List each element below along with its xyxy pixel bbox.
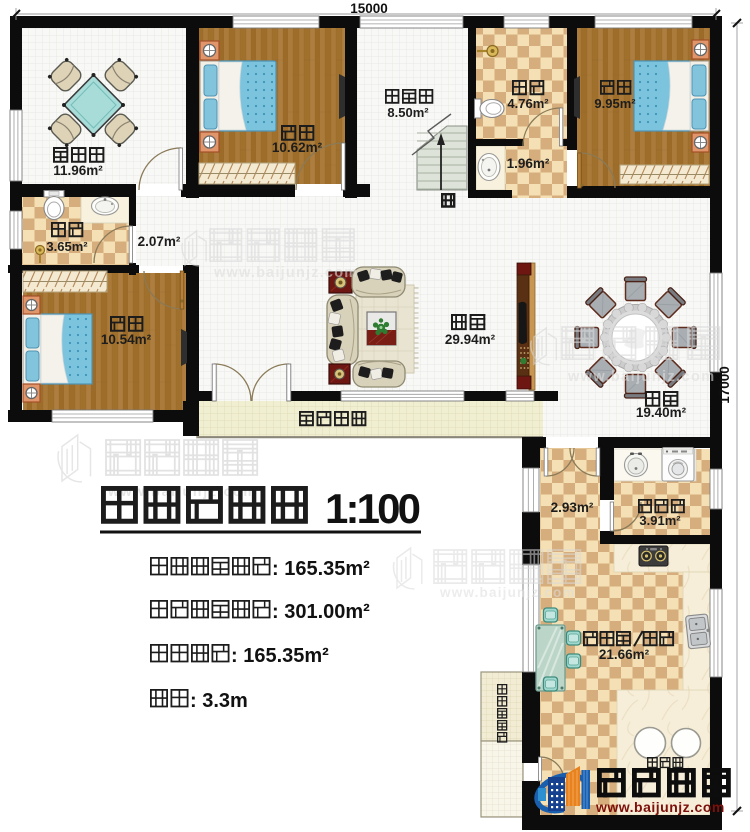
svg-text:15000: 15000 [350, 1, 388, 16]
svg-text:: 165.35m²: : 165.35m² [272, 558, 370, 580]
svg-text:19.40m²: 19.40m² [636, 405, 687, 420]
svg-text:2.07m²: 2.07m² [138, 234, 181, 249]
svg-text:www.baijunjz.com: www.baijunjz.com [595, 799, 725, 815]
svg-text:2.93m²: 2.93m² [551, 500, 594, 515]
svg-text:4.76m²: 4.76m² [507, 96, 549, 111]
svg-text:10.62m²: 10.62m² [272, 140, 323, 155]
svg-text:3.65m²: 3.65m² [46, 239, 88, 254]
svg-text:10.54m²: 10.54m² [101, 332, 152, 347]
svg-text:1.96m²: 1.96m² [507, 156, 550, 171]
svg-text:www.baijunjz.com: www.baijunjz.com [213, 265, 358, 281]
svg-text:www.baijunjz.com: www.baijunjz.com [439, 585, 576, 600]
svg-text:3.91m²: 3.91m² [639, 513, 681, 528]
svg-text:21.66m²: 21.66m² [599, 647, 650, 662]
svg-text:9.95m²: 9.95m² [594, 96, 636, 111]
svg-text:29.94m²: 29.94m² [445, 332, 496, 347]
svg-text:11.96m²: 11.96m² [53, 163, 103, 178]
svg-text:8.50m²: 8.50m² [387, 105, 429, 120]
svg-text:: 165.35m²: : 165.35m² [231, 645, 329, 667]
svg-text:www.baijunjz.com: www.baijunjz.com [107, 483, 258, 499]
svg-text:: 301.00m²: : 301.00m² [272, 601, 370, 623]
svg-text:: 3.3m: : 3.3m [190, 690, 248, 712]
svg-text:17000: 17000 [717, 366, 732, 404]
svg-text:1:100: 1:100 [325, 485, 421, 532]
svg-text:www.baijunjz.com: www.baijunjz.com [567, 369, 716, 385]
